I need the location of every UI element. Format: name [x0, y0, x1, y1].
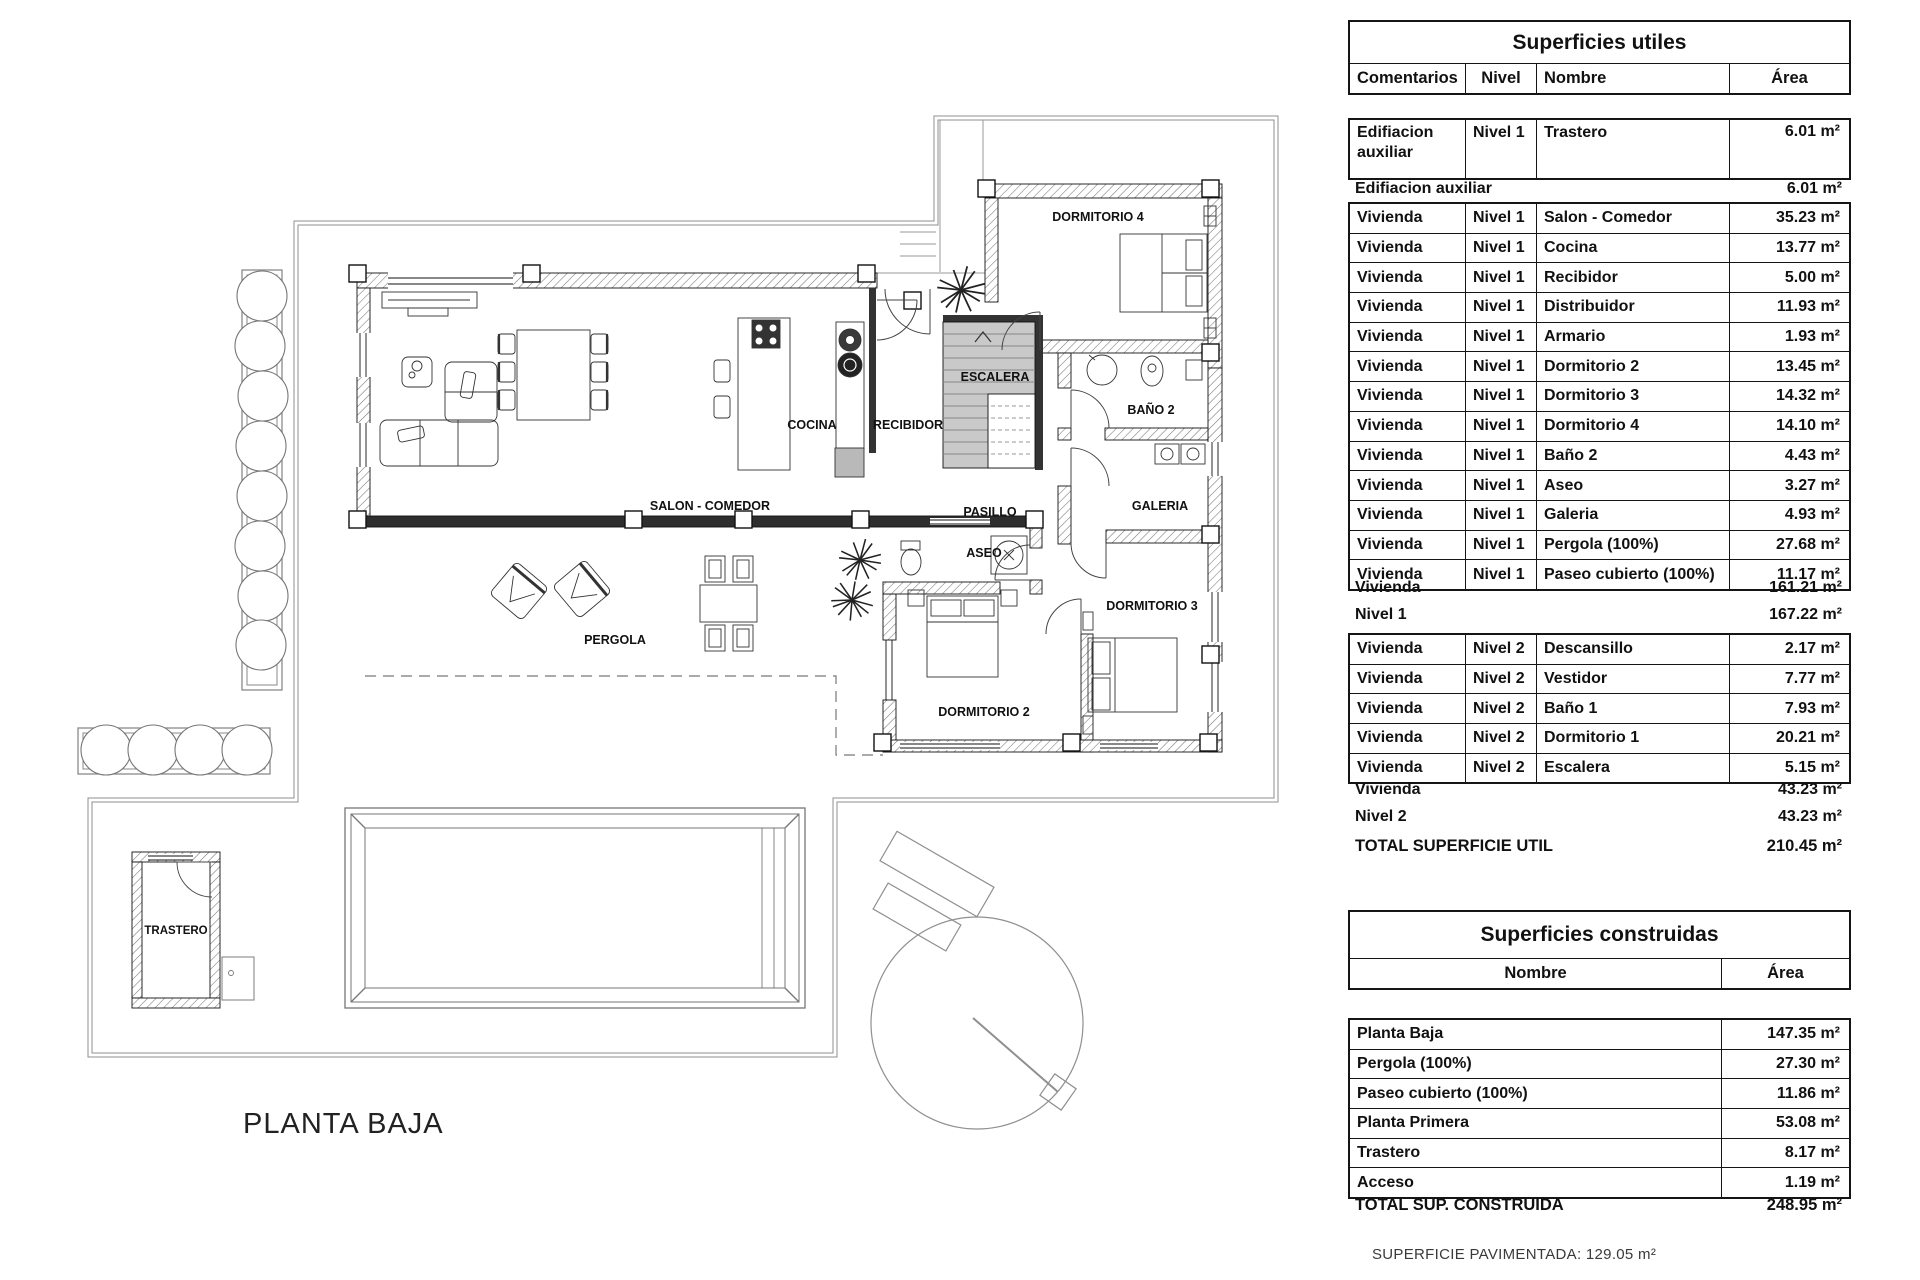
cell-nombre: Pergola (100%) — [1350, 1055, 1721, 1073]
cell-comentarios: Vivienda — [1350, 670, 1465, 688]
utiles-row-block-nivel1: Vivienda Nivel 1 Salon - Comedor 35.23 m… — [1348, 202, 1851, 591]
cell-comentarios: Vivienda — [1350, 759, 1465, 777]
cell-comentarios: Vivienda — [1350, 536, 1465, 554]
cell-comentarios: Edifiacion auxiliar — [1350, 120, 1465, 178]
table-row: Vivienda Nivel 1 Baño 2 4.43 m² — [1350, 441, 1849, 471]
cell-nombre: Dormitorio 2 — [1536, 352, 1729, 381]
label-dormitorio2: DORMITORIO 2 — [938, 705, 1029, 719]
appliance — [835, 448, 864, 477]
cell-nombre: Recibidor — [1536, 263, 1729, 292]
stool — [714, 396, 730, 418]
galeria-appliances — [1155, 444, 1205, 464]
cell-nombre: Armario — [1536, 323, 1729, 352]
cell-comentarios: Vivienda — [1350, 298, 1465, 316]
utiles-row-block-nivel2: Vivienda Nivel 2 Descansillo 2.17 m² Viv… — [1348, 633, 1851, 784]
cell-nivel: Nivel 2 — [1465, 724, 1536, 753]
cell-nombre: Distribuidor — [1536, 293, 1729, 322]
toilet-icon — [1141, 356, 1163, 386]
cell-area: 2.17 m² — [1729, 635, 1849, 664]
table-row: Vivienda Nivel 2 Vestidor 7.77 m² — [1350, 664, 1849, 694]
cell-nombre: Baño 2 — [1536, 442, 1729, 471]
subtotal-label: Nivel 2 — [1355, 808, 1407, 826]
cell-nombre: Vestidor — [1536, 665, 1729, 694]
cell-area: 8.17 m² — [1721, 1139, 1849, 1168]
cell-nombre: Descansillo — [1536, 635, 1729, 664]
living-room — [380, 292, 608, 466]
cell-comentarios: Vivienda — [1350, 477, 1465, 495]
plan-title: PLANTA BAJA — [243, 1108, 444, 1141]
cell-area: 4.93 m² — [1729, 501, 1849, 530]
cell-nombre: Dormitorio 3 — [1536, 382, 1729, 411]
floor-plan: SALON - COMEDOR COCINA RECIBIDOR ESCALER… — [0, 0, 1348, 1280]
label-aseo: ASEO — [966, 546, 1002, 560]
cell-nivel: Nivel 2 — [1465, 665, 1536, 694]
cell-nivel: Nivel 1 — [1465, 352, 1536, 381]
table-row: Paseo cubierto (100%) 11.86 m² — [1350, 1078, 1849, 1108]
table-row: Pergola (100%) 27.30 m² — [1350, 1049, 1849, 1079]
table-row: Vivienda Nivel 1 Armario 1.93 m² — [1350, 322, 1849, 352]
total-row: TOTAL SUP. CONSTRUIDA 248.95 m² — [1348, 1191, 1851, 1219]
pergola-boundary — [365, 676, 883, 755]
table-row: Vivienda Nivel 2 Descansillo 2.17 m² — [1350, 635, 1849, 664]
staircase — [943, 322, 1035, 468]
construidas-header-box: Superficies construidas Nombre Área — [1348, 910, 1851, 990]
cell-nivel: Nivel 1 — [1465, 501, 1536, 530]
cell-nivel: Nivel 1 — [1465, 293, 1536, 322]
label-trastero: TRASTERO — [144, 925, 207, 937]
col-area: Área — [1729, 64, 1849, 93]
round-patio — [871, 831, 1083, 1129]
label-pergola: PERGOLA — [584, 633, 646, 647]
cell-nombre: Trastero — [1536, 120, 1729, 178]
cell-nivel: Nivel 2 — [1465, 635, 1536, 664]
cell-comentarios: Vivienda — [1350, 417, 1465, 435]
cell-nivel: Nivel 1 — [1465, 412, 1536, 441]
col-nivel: Nivel — [1465, 64, 1536, 93]
cell-comentarios: Vivienda — [1350, 387, 1465, 405]
cell-area: 1.93 m² — [1729, 323, 1849, 352]
cell-nivel: Nivel 1 — [1465, 204, 1536, 233]
subtotal-label: Nivel 1 — [1355, 606, 1407, 624]
paved-surface-note: SUPERFICIE PAVIMENTADA: 129.05 m² — [1372, 1246, 1656, 1263]
bedroom4-furniture — [1120, 206, 1216, 338]
cell-comentarios: Vivienda — [1350, 700, 1465, 718]
cell-area: 13.45 m² — [1729, 352, 1849, 381]
table-row: Vivienda Nivel 1 Galeria 4.93 m² — [1350, 500, 1849, 530]
sofa — [380, 362, 498, 466]
construidas-title: Superficies construidas — [1350, 912, 1849, 958]
table-row: Vivienda Nivel 1 Dormitorio 2 13.45 m² — [1350, 351, 1849, 381]
cell-nombre: Salon - Comedor — [1536, 204, 1729, 233]
cell-nivel: Nivel 1 — [1465, 120, 1536, 178]
bedroom3-furniture — [1083, 612, 1177, 734]
cell-area: 13.77 m² — [1729, 234, 1849, 263]
kitchen — [714, 318, 864, 477]
plant-icon — [824, 571, 881, 627]
cell-comentarios: Vivienda — [1350, 447, 1465, 465]
subtotal-row: Vivienda 161.21 m² — [1348, 576, 1851, 600]
table-row: Vivienda Nivel 1 Pergola (100%) 27.68 m² — [1350, 530, 1849, 560]
subtotal-area: 6.01 m² — [1787, 180, 1842, 198]
stool — [714, 360, 730, 382]
cell-area: 4.43 m² — [1729, 442, 1849, 471]
cell-area: 27.30 m² — [1721, 1050, 1849, 1079]
cell-area: 6.01 m² — [1729, 120, 1849, 178]
table-row: Vivienda Nivel 1 Aseo 3.27 m² — [1350, 470, 1849, 500]
cell-area: 53.08 m² — [1721, 1109, 1849, 1138]
utiles-row-block-aux: Edifiacion auxiliar Nivel 1 Trastero 6.0… — [1348, 118, 1851, 180]
subtotal-label: Vivienda — [1355, 781, 1421, 799]
col-comentarios: Comentarios — [1350, 69, 1465, 88]
total-label: TOTAL SUPERFICIE UTIL — [1355, 837, 1553, 856]
cell-comentarios: Vivienda — [1350, 729, 1465, 747]
label-cocina: COCINA — [787, 418, 836, 432]
cell-area: 5.00 m² — [1729, 263, 1849, 292]
subtotal-row: Edifiacion auxiliar 6.01 m² — [1348, 176, 1851, 201]
toilet-icon — [901, 549, 921, 575]
cell-area: 7.77 m² — [1729, 665, 1849, 694]
outdoor-table — [700, 556, 757, 651]
subtotal-label: Vivienda — [1355, 579, 1421, 597]
sink-icon — [838, 353, 862, 377]
cell-nivel: Nivel 1 — [1465, 263, 1536, 292]
cell-nombre: Paseo cubierto (100%) — [1350, 1085, 1721, 1103]
construidas-column-headers: Nombre Área — [1350, 958, 1849, 988]
label-bano2: BAÑO 2 — [1127, 402, 1174, 417]
total-row: TOTAL SUPERFICIE UTIL 210.45 m² — [1348, 832, 1851, 860]
house-walls — [354, 184, 1224, 752]
table-row: Planta Baja 147.35 m² — [1350, 1020, 1849, 1049]
cell-nombre: Dormitorio 4 — [1536, 412, 1729, 441]
cell-area: 147.35 m² — [1721, 1020, 1849, 1049]
cell-nivel: Nivel 1 — [1465, 382, 1536, 411]
cell-area: 11.93 m² — [1729, 293, 1849, 322]
cell-comentarios: Vivienda — [1350, 239, 1465, 257]
table-row: Planta Primera 53.08 m² — [1350, 1108, 1849, 1138]
table-row: Vivienda Nivel 2 Baño 1 7.93 m² — [1350, 693, 1849, 723]
construidas-row-block: Planta Baja 147.35 m² Pergola (100%) 27.… — [1348, 1018, 1851, 1199]
cell-area: 11.86 m² — [1721, 1079, 1849, 1108]
cell-area: 14.32 m² — [1729, 382, 1849, 411]
access-walkway — [877, 120, 985, 273]
subtotal-row: Nivel 1 167.22 m² — [1348, 602, 1851, 628]
cell-area: 7.93 m² — [1729, 694, 1849, 723]
cell-nombre: Baño 1 — [1536, 694, 1729, 723]
cell-comentarios: Vivienda — [1350, 506, 1465, 524]
cell-nombre: Galeria — [1536, 501, 1729, 530]
subtotal-row: Nivel 2 43.23 m² — [1348, 804, 1851, 830]
cell-area: 27.68 m² — [1729, 531, 1849, 560]
cell-nombre: Dormitorio 1 — [1536, 724, 1729, 753]
horizontal-planter — [78, 725, 272, 775]
cooktop-icon — [752, 320, 780, 348]
plant-icon — [839, 539, 881, 580]
table-row: Vivienda Nivel 1 Cocina 13.77 m² — [1350, 233, 1849, 263]
label-dormitorio3: DORMITORIO 3 — [1106, 599, 1197, 613]
cell-nivel: Nivel 1 — [1465, 323, 1536, 352]
dining-table — [498, 330, 608, 420]
utiles-title: Superficies utiles — [1350, 22, 1849, 63]
tree-row — [235, 271, 288, 670]
cell-nivel: Nivel 2 — [1465, 694, 1536, 723]
table-row: Vivienda Nivel 2 Dormitorio 1 20.21 m² — [1350, 723, 1849, 753]
total-area: 210.45 m² — [1767, 837, 1842, 856]
table-row: Vivienda Nivel 1 Recibidor 5.00 m² — [1350, 262, 1849, 292]
total-area: 248.95 m² — [1767, 1196, 1842, 1215]
tv — [408, 308, 448, 316]
cell-nivel: Nivel 1 — [1465, 471, 1536, 500]
subtotal-row: Vivienda 43.23 m² — [1348, 778, 1851, 802]
washbasin-icon — [1087, 355, 1117, 385]
subtotal-area: 167.22 m² — [1769, 606, 1842, 624]
utiles-header-box: Superficies utiles Comentarios Nivel Nom… — [1348, 20, 1851, 95]
col-nombre: Nombre — [1350, 959, 1721, 988]
col-nombre: Nombre — [1536, 64, 1729, 93]
window-icon — [1083, 612, 1093, 630]
cell-area: 14.10 m² — [1729, 412, 1849, 441]
label-galeria: GALERIA — [1132, 499, 1188, 513]
nightstand — [1001, 590, 1017, 606]
col-area: Área — [1721, 959, 1849, 988]
table-row: Vivienda Nivel 1 Distribuidor 11.93 m² — [1350, 292, 1849, 322]
subtotal-label: Edifiacion auxiliar — [1355, 180, 1492, 198]
table-row: Vivienda Nivel 1 Dormitorio 3 14.32 m² — [1350, 381, 1849, 411]
aseo-fixtures — [901, 536, 1027, 575]
utiles-column-headers: Comentarios Nivel Nombre Área — [1350, 63, 1849, 93]
label-escalera: ESCALERA — [961, 370, 1030, 384]
subtotal-area: 161.21 m² — [1769, 579, 1842, 597]
table-row: Edifiacion auxiliar Nivel 1 Trastero 6.0… — [1350, 120, 1849, 178]
cell-nombre: Cocina — [1536, 234, 1729, 263]
cell-nombre: Trastero — [1350, 1144, 1721, 1162]
vertical-planter — [235, 270, 288, 690]
shelf — [1186, 360, 1202, 380]
total-label: TOTAL SUP. CONSTRUIDA — [1355, 1196, 1564, 1215]
cell-nombre: Planta Primera — [1350, 1114, 1721, 1132]
cell-nombre: Acceso — [1350, 1174, 1721, 1192]
cell-nivel: Nivel 1 — [1465, 531, 1536, 560]
table-row: Vivienda Nivel 1 Salon - Comedor 35.23 m… — [1350, 204, 1849, 233]
cell-nombre: Planta Baja — [1350, 1025, 1721, 1043]
cell-area: 20.21 m² — [1729, 724, 1849, 753]
bedroom2-furniture — [908, 590, 1017, 677]
cell-comentarios: Vivienda — [1350, 269, 1465, 287]
table-row: Vivienda Nivel 1 Dormitorio 4 14.10 m² — [1350, 411, 1849, 441]
cell-comentarios: Vivienda — [1350, 209, 1465, 227]
label-pasillo: PASILLO — [963, 505, 1017, 519]
cell-nombre: Aseo — [1536, 471, 1729, 500]
pool — [345, 808, 805, 1008]
cell-comentarios: Vivienda — [1350, 328, 1465, 346]
side-table — [402, 357, 432, 387]
cell-nivel: Nivel 1 — [1465, 442, 1536, 471]
subtotal-area: 43.23 m² — [1778, 781, 1842, 799]
cell-comentarios: Vivienda — [1350, 640, 1465, 658]
cell-area: 3.27 m² — [1729, 471, 1849, 500]
table-row: Trastero 8.17 m² — [1350, 1138, 1849, 1168]
cell-area: 35.23 m² — [1729, 204, 1849, 233]
label-recibidor: RECIBIDOR — [873, 418, 943, 432]
lounge-chair — [489, 559, 611, 620]
cell-comentarios: Vivienda — [1350, 358, 1465, 376]
subtotal-area: 43.23 m² — [1778, 808, 1842, 826]
cell-nombre: Pergola (100%) — [1536, 531, 1729, 560]
page: SALON - COMEDOR COCINA RECIBIDOR ESCALER… — [0, 0, 1920, 1280]
label-dormitorio4: DORMITORIO 4 — [1052, 210, 1143, 224]
bathroom2-fixtures — [1087, 355, 1202, 386]
label-salon: SALON - COMEDOR — [650, 499, 770, 513]
cell-nivel: Nivel 1 — [1465, 234, 1536, 263]
